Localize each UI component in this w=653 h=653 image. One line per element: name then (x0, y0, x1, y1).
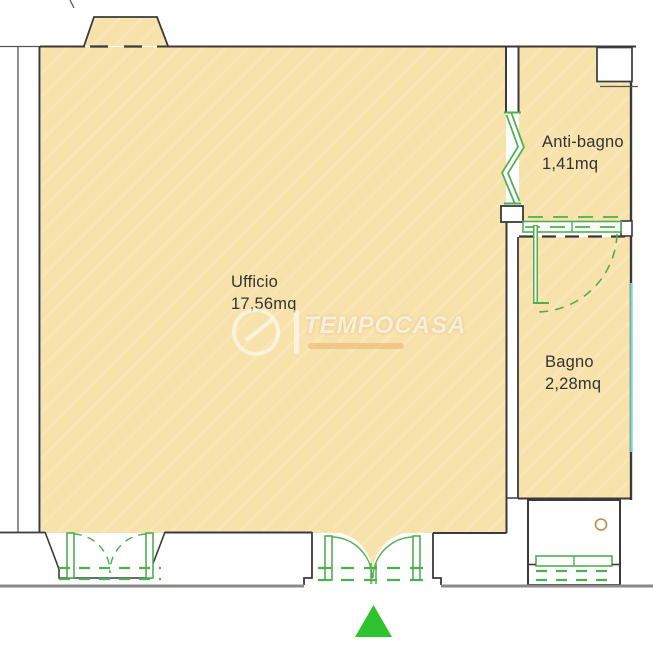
utility-room (528, 500, 620, 585)
floor-plan: Ufficio 17,56mq Anti-bagno 1,41mq Bagno … (0, 0, 653, 653)
room-name: Ufficio (231, 271, 297, 293)
left-window (59, 533, 161, 579)
corner-shaft (597, 48, 632, 82)
room-name: Bagno (545, 351, 601, 373)
floor-plan-drawing (0, 0, 653, 653)
room-area: 17,56mq (231, 293, 297, 315)
doorway-left-pier (501, 206, 523, 222)
room-area: 2,28mq (545, 373, 601, 395)
doorway-right-pier (621, 221, 632, 236)
entrance-marker-triangle (355, 605, 392, 637)
boiler-symbol (596, 519, 607, 530)
folding-door (504, 113, 521, 204)
room-label-antibagno: Anti-bagno 1,41mq (542, 131, 624, 175)
entrance-right-jamb (433, 533, 441, 585)
room-area: 1,41mq (542, 153, 624, 175)
top-projection (84, 17, 168, 46)
room-label-ufficio: Ufficio 17,56mq (231, 271, 297, 315)
room-label-bagno: Bagno 2,28mq (545, 351, 601, 395)
room-name: Anti-bagno (542, 131, 624, 153)
entrance-left-jamb (304, 532, 312, 585)
